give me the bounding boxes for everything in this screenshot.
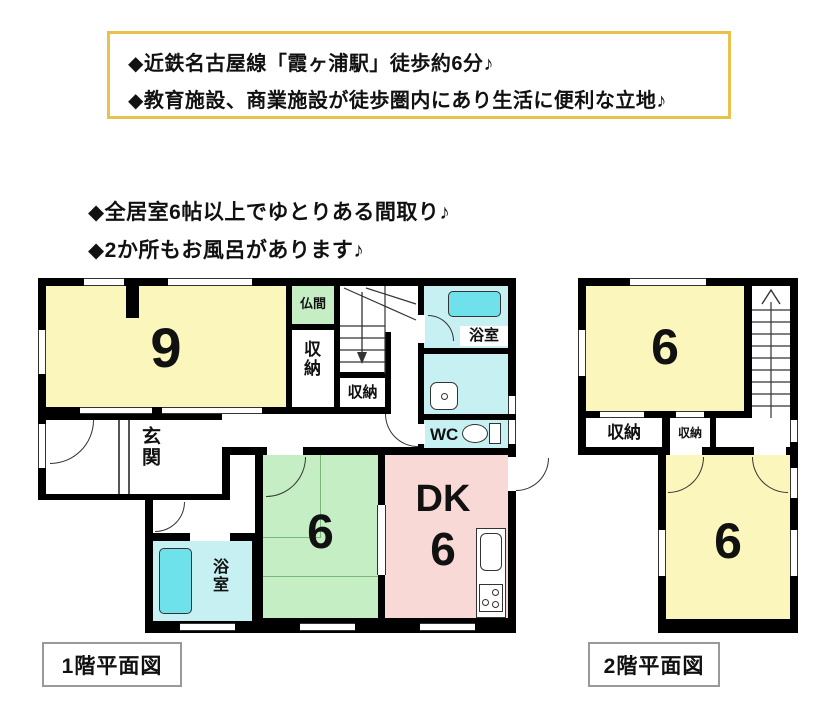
label-closet-under-stairs: 収納 bbox=[340, 385, 385, 400]
label-f2-closet-small: 収納 bbox=[670, 427, 710, 439]
f1-wall-stub bbox=[126, 286, 139, 318]
sliding-door bbox=[80, 407, 152, 414]
window bbox=[790, 468, 798, 498]
bathtub-icon bbox=[159, 548, 192, 614]
floorplan-page: ◆近鉄名古屋線「霞ヶ浦駅」徒歩約6分♪ ◆教育施設、商業施設が徒歩圏内にあり生活… bbox=[0, 0, 840, 718]
entrance-step-line bbox=[128, 420, 130, 494]
label-bath-lower: 浴室 bbox=[210, 558, 226, 594]
label-f2-room-top: 6 bbox=[586, 318, 744, 376]
toilet-bowl-icon bbox=[462, 424, 488, 443]
label-living-size: 9 bbox=[46, 315, 286, 380]
label-entrance: 玄関 bbox=[140, 426, 159, 468]
entrance-step-line bbox=[118, 420, 120, 494]
door-gap bbox=[267, 447, 303, 455]
caption-floor1: 1階平面図 bbox=[42, 642, 182, 687]
window bbox=[168, 278, 252, 286]
window bbox=[38, 330, 46, 374]
label-wc: WC bbox=[430, 426, 458, 443]
label-closet-vertical: 収納 bbox=[302, 340, 319, 378]
window bbox=[790, 420, 798, 442]
sliding-door bbox=[600, 411, 644, 418]
door-gap bbox=[754, 447, 786, 455]
window bbox=[658, 530, 666, 576]
label-dk-size: 6 bbox=[398, 522, 488, 576]
header-line-2: ◆教育施設、商業施設が徒歩圏内にあり生活に便利な立地♪ bbox=[128, 84, 667, 113]
stove-icon bbox=[479, 584, 503, 612]
window bbox=[508, 396, 516, 414]
window bbox=[420, 623, 475, 631]
feature-line-1: ◆全居室6帖以上でゆとりある間取り♪ bbox=[88, 196, 450, 226]
window bbox=[84, 278, 124, 286]
toilet-tank-icon bbox=[489, 423, 501, 444]
label-butsuma: 仏間 bbox=[292, 297, 334, 310]
f2-landing bbox=[716, 418, 790, 447]
door-gap bbox=[417, 424, 425, 444]
window bbox=[180, 623, 235, 631]
stairs-down-icon bbox=[340, 286, 418, 374]
stairs-up-icon bbox=[752, 286, 790, 418]
header-line-1: ◆近鉄名古屋線「霞ヶ浦駅」徒歩約6分♪ bbox=[128, 47, 494, 76]
label-dk: DK bbox=[398, 478, 488, 521]
label-f2-room-bottom: 6 bbox=[666, 512, 790, 570]
sliding-door bbox=[377, 505, 386, 575]
caption-floor1-text: 1階平面図 bbox=[62, 650, 163, 680]
door-gap bbox=[508, 457, 516, 491]
header-highlight-box: ◆近鉄名古屋線「霞ヶ浦駅」徒歩約6分♪ ◆教育施設、商業施設が徒歩圏内にあり生活… bbox=[107, 31, 731, 119]
feature-line-2: ◆2か所もお風呂があります♪ bbox=[88, 234, 364, 264]
door-gap bbox=[417, 315, 425, 343]
window bbox=[38, 424, 46, 468]
sliding-door bbox=[676, 411, 704, 418]
caption-floor2-text: 2階平面図 bbox=[604, 650, 705, 680]
label-f2-closet-large: 収納 bbox=[586, 424, 662, 441]
sliding-door bbox=[162, 407, 262, 414]
window bbox=[300, 623, 355, 631]
window bbox=[630, 278, 706, 286]
tatami-line bbox=[263, 576, 378, 577]
label-bath-upper: 浴室 bbox=[460, 326, 508, 346]
door-arc bbox=[516, 458, 549, 491]
window bbox=[508, 420, 516, 444]
sink-icon bbox=[430, 382, 458, 410]
caption-floor2: 2階平面図 bbox=[588, 642, 720, 687]
door-gap bbox=[190, 533, 230, 541]
door-gap bbox=[670, 447, 702, 455]
window bbox=[578, 330, 586, 376]
bathtub-icon bbox=[448, 291, 501, 317]
label-tatami-size: 6 bbox=[263, 505, 378, 560]
window bbox=[790, 530, 798, 576]
